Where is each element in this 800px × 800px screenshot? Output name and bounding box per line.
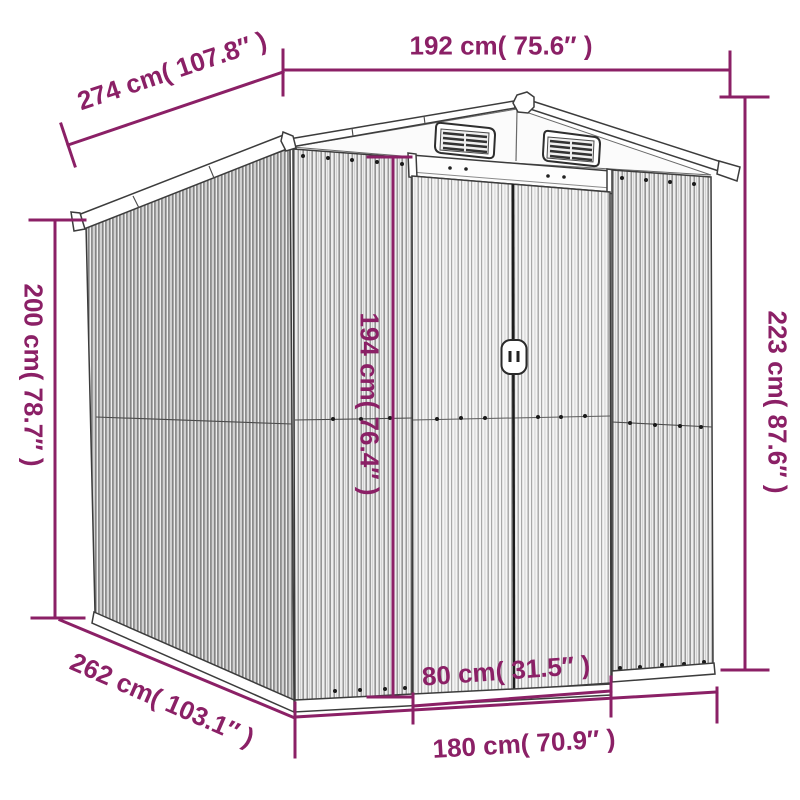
roof-apex-cap [513, 92, 534, 113]
front-panel-right [612, 170, 715, 682]
sliding-doors [412, 176, 611, 697]
diagram-canvas: 192 cm( 75.6″ ) 274 cm( 107.8″ ) 200 cm(… [0, 0, 800, 800]
handle-slot [509, 351, 512, 362]
door-center-seam [513, 184, 514, 690]
roof-right-end-cap [717, 161, 740, 181]
door-panels [412, 176, 611, 697]
side-wall [71, 134, 294, 712]
louver-vent-right [543, 131, 600, 166]
louver-vent-left [435, 123, 495, 158]
side-wall-panel [86, 148, 294, 700]
dimension-label-right-height: 223 cm( 87.6″ ) [762, 310, 793, 493]
handle-slot [517, 351, 520, 362]
dimension-label-top-width: 192 cm( 75.6″ ) [409, 31, 592, 62]
door-handle [502, 340, 527, 374]
shed [71, 92, 740, 712]
dimension-label-left-height: 200 cm( 78.7″ ) [18, 283, 49, 466]
dimension-label-door-height: 194 cm( 76.4″ ) [354, 312, 385, 495]
